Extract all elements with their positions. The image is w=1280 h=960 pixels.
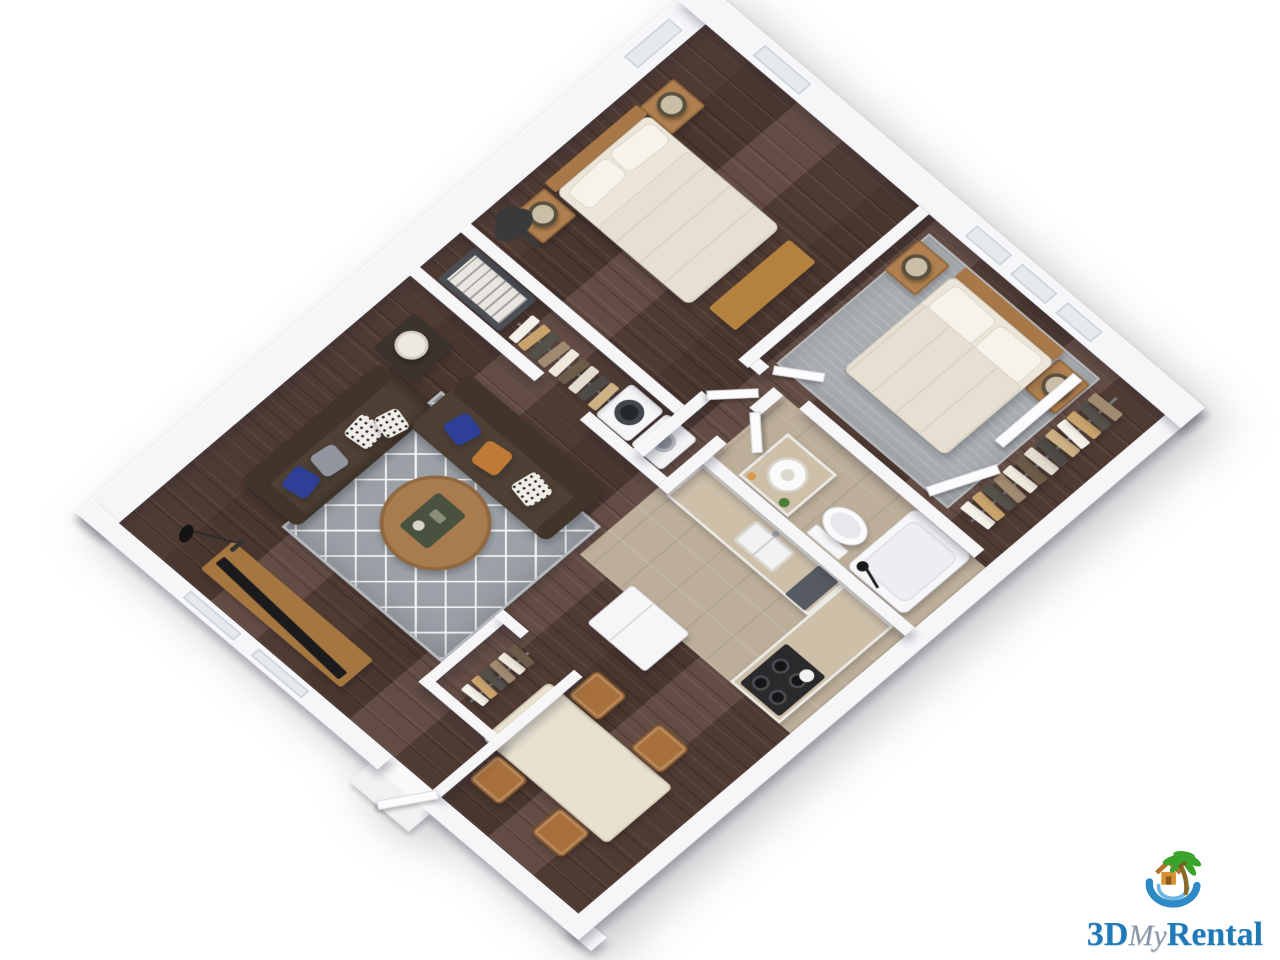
logo-part-my: My xyxy=(1128,919,1166,952)
logo-part-rental: Rental xyxy=(1167,916,1263,953)
brand-logo-text: 3DMyRental xyxy=(1080,918,1270,952)
logo-part-3d: 3D xyxy=(1087,916,1129,953)
floor-plan-3d xyxy=(119,24,1166,914)
palm-house-wave-icon xyxy=(1138,849,1212,913)
screenshot-canvas: 3DMyRental xyxy=(0,0,1280,960)
brand-logo: 3DMyRental xyxy=(1080,849,1270,952)
